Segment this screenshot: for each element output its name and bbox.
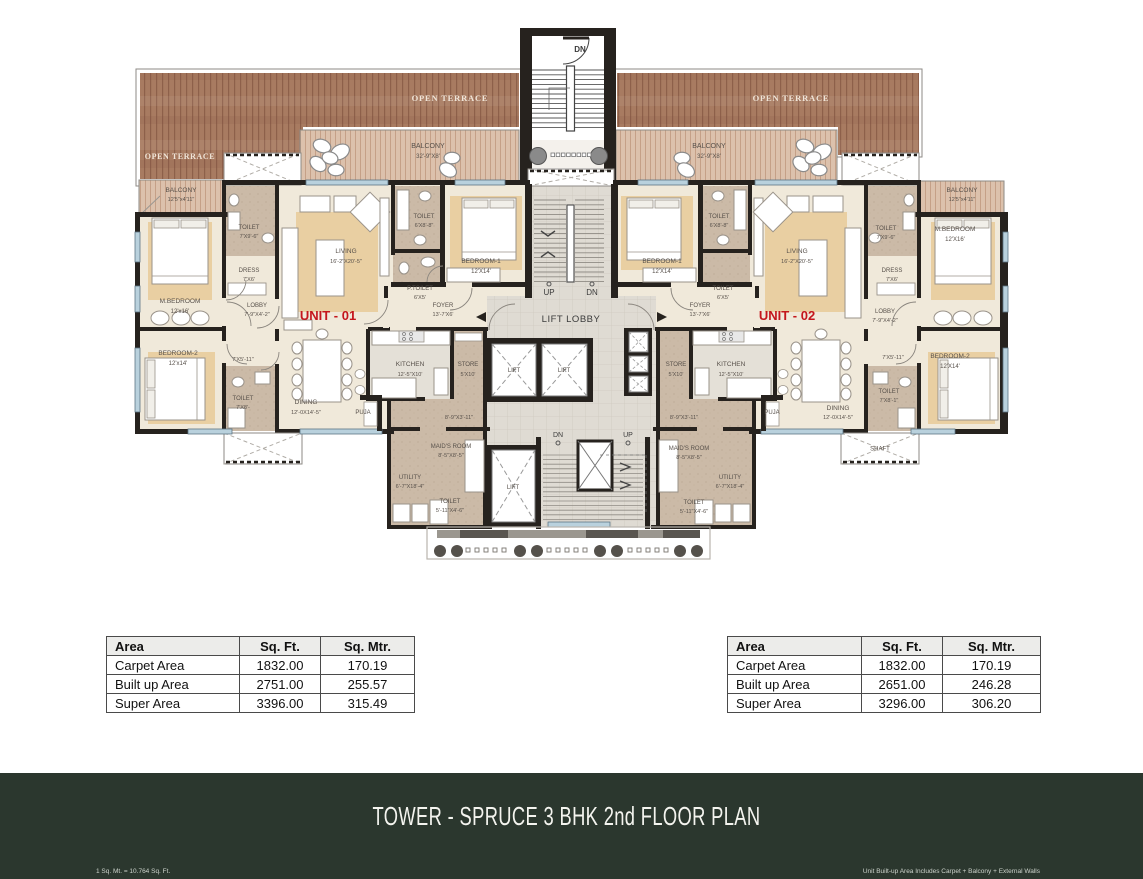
svg-text:12'X14': 12'X14' [471,269,491,275]
svg-text:BEDROOM-2: BEDROOM-2 [158,350,198,357]
svg-text:12'-0X14'-5": 12'-0X14'-5" [823,415,853,421]
svg-text:TOILET: TOILET [879,389,900,395]
svg-text:6'X8'-8": 6'X8'-8" [710,223,729,229]
svg-text:TOILET: TOILET [440,499,461,505]
svg-text:8'-5"X8'-5": 8'-5"X8'-5" [438,453,464,459]
svg-text:BALCONY: BALCONY [692,143,726,150]
svg-text:7'X6': 7'X6' [243,277,255,283]
svg-text:DINING: DINING [295,399,318,406]
svg-text:DN: DN [553,432,563,439]
svg-text:DN: DN [586,288,598,297]
svg-text:7'X5'-11": 7'X5'-11" [882,355,903,361]
svg-text:LOBBY: LOBBY [247,303,267,309]
svg-text:UTILITY: UTILITY [719,475,741,481]
svg-text:UNIT - 02: UNIT - 02 [759,308,815,323]
svg-text:12'-5"X10': 12'-5"X10' [719,372,744,378]
svg-text:12'X14': 12'X14' [940,364,960,370]
svg-text:DINING: DINING [827,405,850,412]
svg-text:13'-7'X6': 13'-7'X6' [690,312,711,318]
svg-text:12'x14': 12'x14' [169,361,188,367]
svg-text:12'-5"X10': 12'-5"X10' [398,372,423,378]
svg-text:OPEN TERRACE: OPEN TERRACE [753,93,830,103]
svg-text:KITCHEN: KITCHEN [396,361,425,368]
svg-text:PUJA: PUJA [764,410,779,416]
svg-text:32'-9"X8': 32'-9"X8' [697,154,721,160]
svg-text:FOYER: FOYER [433,303,454,309]
svg-text:LIFT LOBBY: LIFT LOBBY [542,314,601,325]
svg-text:BEDROOM-1: BEDROOM-1 [461,258,501,265]
svg-text:7'-9"X4'-2": 7'-9"X4'-2" [244,312,270,318]
svg-text:TOILET: TOILET [233,396,254,402]
svg-text:DRESS: DRESS [882,268,903,274]
svg-text:P.TOILET: P.TOILET [407,286,433,292]
svg-text:12'X14': 12'X14' [652,269,672,275]
svg-text:7'X8'-: 7'X8'- [236,405,250,411]
svg-text:12'-0X14'-5": 12'-0X14'-5" [291,410,321,416]
svg-text:6'X5': 6'X5' [717,295,729,301]
svg-text:16'-2"X20'-5": 16'-2"X20'-5" [330,259,362,265]
svg-text:5'X10': 5'X10' [669,372,684,378]
svg-text:6'X8'-8": 6'X8'-8" [415,223,434,229]
svg-text:7'-9"X4'-2": 7'-9"X4'-2" [872,318,898,324]
svg-text:OPEN TERRACE: OPEN TERRACE [412,93,489,103]
svg-text:12'x16': 12'x16' [171,309,190,315]
svg-text:12'5"x4'11": 12'5"x4'11" [949,197,976,203]
svg-text:KITCHEN: KITCHEN [717,361,746,368]
svg-text:32'-9"X8': 32'-9"X8' [416,154,440,160]
svg-text:MAID'S ROOM: MAID'S ROOM [669,446,709,452]
svg-text:DRESS: DRESS [239,268,260,274]
svg-text:UP: UP [543,288,554,297]
svg-text:16'-2"X20'-5": 16'-2"X20'-5" [781,259,813,265]
svg-text:5'-11"X4'-6": 5'-11"X4'-6" [680,509,708,515]
svg-text:7'X9'-6": 7'X9'-6" [877,235,896,241]
svg-text:UP: UP [623,432,633,439]
svg-text:M.BEDROOM: M.BEDROOM [935,226,976,233]
svg-text:PUJA: PUJA [355,410,370,416]
svg-text:8'-5"X8'-5": 8'-5"X8'-5" [676,455,702,461]
svg-text:6'X5': 6'X5' [414,295,426,301]
svg-text:7'X6': 7'X6' [886,277,898,283]
svg-text:7'X5'-11": 7'X5'-11" [232,357,253,363]
svg-text:LOBBY: LOBBY [875,309,895,315]
svg-text:LIVING: LIVING [335,248,356,255]
svg-text:BALCONY: BALCONY [411,143,445,150]
svg-text:UTILITY: UTILITY [399,475,421,481]
svg-text:BALCONY: BALCONY [165,187,197,194]
svg-text:TOILET: TOILET [684,500,705,506]
svg-text:BEDROOM-2: BEDROOM-2 [930,353,970,360]
svg-text:SHAFT: SHAFT [870,447,890,453]
svg-text:13'-7'X6': 13'-7'X6' [433,312,454,318]
svg-text:5'X10': 5'X10' [461,372,476,378]
svg-text:TOILET: TOILET [876,226,897,232]
svg-text:STORE: STORE [666,362,687,368]
svg-text:LIFT: LIFT [508,368,521,374]
svg-text:TOILET: TOILET [239,225,260,231]
svg-text:LIFT: LIFT [507,485,520,491]
svg-text:12'X16': 12'X16' [945,237,965,243]
svg-text:12'5"x4'11": 12'5"x4'11" [168,197,195,203]
svg-text:BALCONY: BALCONY [946,187,978,194]
svg-text:7'X9'-6": 7'X9'-6" [240,234,259,240]
svg-text:6'-7"X18'-4": 6'-7"X18'-4" [396,484,425,490]
svg-text:STORE: STORE [458,362,479,368]
svg-text:8'-9"X3'-11": 8'-9"X3'-11" [670,415,698,421]
svg-text:OPEN TERRACE: OPEN TERRACE [145,152,215,161]
svg-text:TOILET: TOILET [709,214,730,220]
svg-text:LIVING: LIVING [786,248,807,255]
svg-text:7'X8'-1": 7'X8'-1" [880,398,899,404]
svg-text:BEDROOM-1: BEDROOM-1 [642,258,682,265]
svg-text:FOYER: FOYER [690,303,711,309]
svg-text:8'-9"X3'-11": 8'-9"X3'-11" [445,415,473,421]
svg-text:MAID'S ROOM: MAID'S ROOM [431,444,471,450]
svg-text:LIFT: LIFT [558,368,571,374]
svg-text:6'-7"X18'-4": 6'-7"X18'-4" [716,484,745,490]
svg-text:TOILET: TOILET [414,214,435,220]
svg-text:M.BEDROOM: M.BEDROOM [160,298,201,305]
svg-text:5'-11"X4'-6": 5'-11"X4'-6" [436,508,464,514]
svg-text:UNIT - 01: UNIT - 01 [300,308,356,323]
svg-text:TOILET: TOILET [713,286,734,292]
